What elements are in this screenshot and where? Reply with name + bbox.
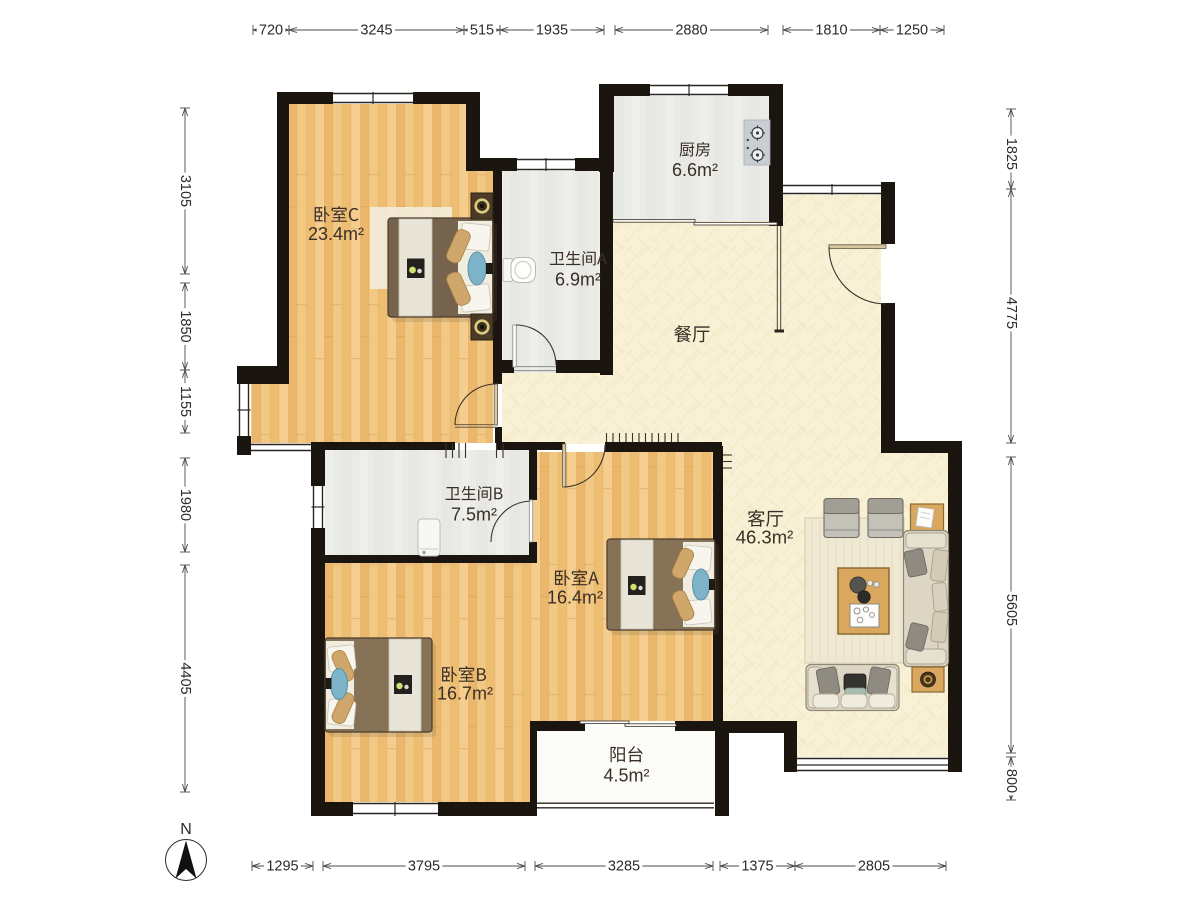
svg-text:16.7m²: 16.7m² bbox=[437, 683, 493, 703]
svg-text:6.6m²: 6.6m² bbox=[672, 160, 718, 180]
svg-text:3795: 3795 bbox=[408, 858, 440, 874]
svg-text:720: 720 bbox=[259, 22, 283, 38]
svg-text:16.4m²: 16.4m² bbox=[547, 587, 603, 607]
svg-text:1825: 1825 bbox=[1003, 138, 1019, 170]
svg-text:1935: 1935 bbox=[536, 22, 568, 38]
svg-text:46.3m²: 46.3m² bbox=[736, 526, 794, 547]
svg-text:3285: 3285 bbox=[608, 858, 640, 874]
svg-text:6.9m²: 6.9m² bbox=[555, 269, 601, 289]
svg-text:1250: 1250 bbox=[896, 22, 928, 38]
svg-text:2805: 2805 bbox=[858, 858, 890, 874]
svg-text:3105: 3105 bbox=[177, 175, 193, 207]
svg-text:800: 800 bbox=[1003, 769, 1019, 793]
svg-text:4775: 4775 bbox=[1003, 297, 1019, 329]
svg-text:4.5m²: 4.5m² bbox=[603, 765, 649, 785]
svg-text:2880: 2880 bbox=[675, 22, 707, 38]
svg-text:23.4m²: 23.4m² bbox=[308, 224, 364, 244]
svg-text:1295: 1295 bbox=[266, 858, 298, 874]
svg-text:1155: 1155 bbox=[177, 386, 193, 417]
svg-text:1980: 1980 bbox=[177, 489, 193, 521]
svg-text:1810: 1810 bbox=[815, 22, 847, 38]
svg-text:1375: 1375 bbox=[741, 858, 773, 874]
svg-text:4405: 4405 bbox=[177, 662, 193, 694]
svg-text:1850: 1850 bbox=[177, 310, 193, 342]
svg-text:5605: 5605 bbox=[1003, 594, 1019, 626]
svg-text:N: N bbox=[180, 821, 192, 838]
svg-text:7.5m²: 7.5m² bbox=[451, 504, 497, 524]
svg-text:3245: 3245 bbox=[360, 22, 392, 38]
svg-text:515: 515 bbox=[470, 22, 494, 38]
